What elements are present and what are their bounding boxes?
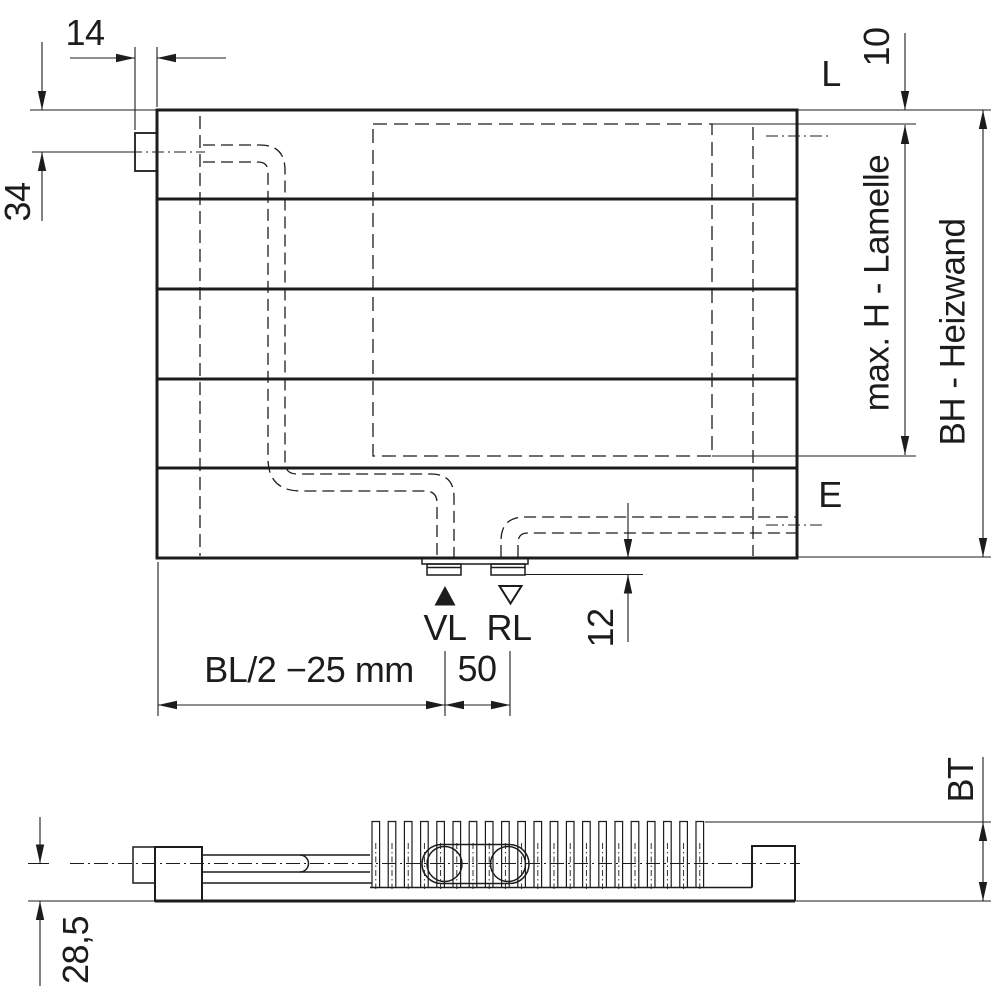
dim-label-lamelle-inset-top: 10 <box>859 27 895 66</box>
panel-joint-lines <box>157 199 797 468</box>
vl-pipe <box>203 145 454 557</box>
marker-label-supply: VL <box>423 610 466 646</box>
dim-label-lamelle-max-height: max. H - Lamelle <box>860 155 895 412</box>
dim-label-connection-spacing: 50 <box>457 651 496 687</box>
vl-stub <box>427 564 461 575</box>
connection-stubs <box>422 558 528 575</box>
dim-label-connection-protrusion: 12 <box>583 608 619 647</box>
dim-label-bracket-axis-from-top: 34 <box>0 182 36 221</box>
plan-bracket-body <box>155 847 202 901</box>
dim-label-bracket-tab-width: 14 <box>65 15 104 51</box>
dim-label-pipe-axis-from-wall: 28,5 <box>58 916 94 984</box>
vl-supply-triangle-icon <box>435 586 456 606</box>
dim-label-build-height: BH - Heizwand <box>936 219 971 446</box>
drawing-linework <box>0 0 1000 1000</box>
plan-bracket-tab <box>133 847 155 883</box>
plan-view <box>70 822 800 902</box>
rl-return-triangle-icon <box>500 586 522 604</box>
marker-label-bottom-right: E <box>818 477 842 513</box>
rl-stub <box>491 564 525 575</box>
channel-hidden-lines <box>200 116 753 556</box>
plan-right-bracket <box>752 846 795 901</box>
marker-label-top-right: L <box>821 56 841 92</box>
radiator-dimension-drawing: 14 34 10 L max. H - Lamelle BH - Heizwan… <box>0 0 1000 1000</box>
radiator-outline <box>157 110 797 558</box>
marker-label-return: RL <box>486 610 531 646</box>
fin-comb <box>372 822 704 890</box>
dim-label-build-depth: BT <box>943 757 979 802</box>
dim-label-connection-offset-left: BL/2 −25 mm <box>204 652 414 688</box>
front-view <box>130 110 831 606</box>
